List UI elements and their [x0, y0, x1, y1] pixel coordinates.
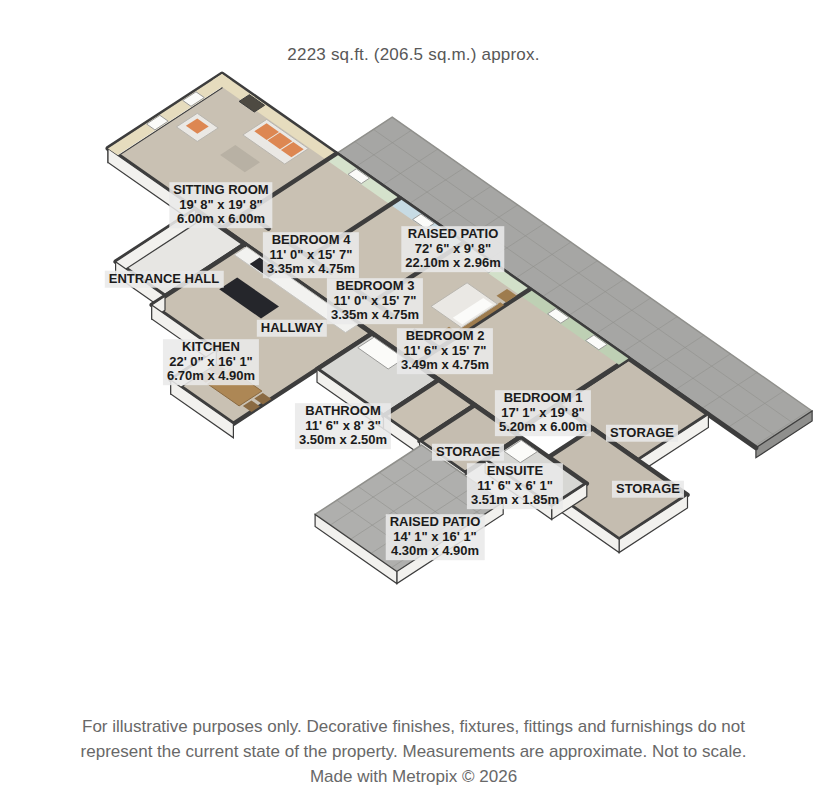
room-name: ENTRANCE HALL	[109, 272, 220, 287]
room-label-ensuite: ENSUITE11' 6" x 6' 1"3.51m x 1.85m	[467, 463, 563, 509]
room-label-bedroom-4: BEDROOM 411' 0" x 15' 7"3.35m x 4.75m	[263, 232, 359, 278]
floorplan-rendering	[0, 0, 827, 800]
room-label-bedroom-1: BEDROOM 117' 1" x 19' 8"5.20m x 6.00m	[495, 390, 591, 436]
room-label-raised-patio-top: RAISED PATIO72' 6" x 9' 8"22.10m x 2.96m	[401, 226, 504, 272]
room-dims-ft: 14' 1" x 16' 1"	[390, 530, 481, 545]
room-name: BEDROOM 2	[401, 329, 489, 344]
room-label-bedroom-2: BEDROOM 211' 6" x 15' 7"3.49m x 4.75m	[397, 328, 493, 374]
room-dims-ft: 11' 6" x 8' 3"	[299, 419, 387, 434]
room-name: HALLWAY	[261, 321, 323, 336]
disclaimer-line-2: represent the current state of the prope…	[0, 739, 827, 764]
floor-area-text: 2223 sq.ft. (206.5 sq.m.) approx.	[0, 45, 827, 65]
room-label-hallway: HALLWAY	[257, 320, 327, 337]
room-label-bedroom-3: BEDROOM 311' 0" x 15' 7"3.35m x 4.75m	[327, 278, 423, 324]
room-name: ENSUITE	[471, 464, 559, 479]
room-dims-ft: 72' 6" x 9' 8"	[405, 242, 500, 257]
room-dims-ft: 19' 8" x 19' 8"	[173, 198, 268, 213]
room-label-bathroom: BATHROOM11' 6" x 8' 3"3.50m x 2.50m	[295, 403, 391, 449]
room-dims-ft: 17' 1" x 19' 8"	[499, 406, 587, 421]
room-dims-m: 3.51m x 1.85m	[471, 493, 559, 508]
room-name: SITTING ROOM	[173, 183, 268, 198]
room-dims-m: 3.35m x 4.75m	[267, 262, 355, 277]
room-name: STORAGE	[436, 445, 500, 460]
room-label-kitchen: KITCHEN22' 0" x 16' 1"6.70m x 4.90m	[163, 339, 259, 385]
room-name: BATHROOM	[299, 404, 387, 419]
room-dims-m: 22.10m x 2.96m	[405, 256, 500, 271]
room-dims-ft: 11' 0" x 15' 7"	[267, 248, 355, 263]
room-label-storage-mid: STORAGE	[432, 444, 504, 461]
room-dims-m: 6.70m x 4.90m	[167, 369, 255, 384]
disclaimer-text: For illustrative purposes only. Decorati…	[0, 714, 827, 789]
room-name: KITCHEN	[167, 340, 255, 355]
room-dims-ft: 11' 6" x 6' 1"	[471, 479, 559, 494]
room-name: RAISED PATIO	[390, 515, 481, 530]
room-dims-m: 3.35m x 4.75m	[331, 308, 419, 323]
room-label-storage-se: STORAGE	[612, 481, 684, 498]
room-name: BEDROOM 4	[267, 233, 355, 248]
room-label-sitting-room: SITTING ROOM19' 8" x 19' 8"6.00m x 6.00m	[169, 182, 272, 228]
room-dims-ft: 22' 0" x 16' 1"	[167, 355, 255, 370]
room-label-raised-patio-bottom: RAISED PATIO14' 1" x 16' 1"4.30m x 4.90m	[386, 514, 485, 560]
room-label-entrance-hall: ENTRANCE HALL	[105, 271, 224, 288]
disclaimer-line-1: For illustrative purposes only. Decorati…	[0, 714, 827, 739]
room-name: BEDROOM 1	[499, 391, 587, 406]
room-name: STORAGE	[610, 426, 674, 441]
room-dims-ft: 11' 0" x 15' 7"	[331, 294, 419, 309]
room-dims-m: 6.00m x 6.00m	[173, 212, 268, 227]
room-dims-m: 3.50m x 2.50m	[299, 433, 387, 448]
room-dims-m: 5.20m x 6.00m	[499, 420, 587, 435]
disclaimer-line-3: Made with Metropix © 2026	[0, 764, 827, 789]
room-name: STORAGE	[616, 482, 680, 497]
room-dims-m: 3.49m x 4.75m	[401, 358, 489, 373]
room-name: RAISED PATIO	[405, 227, 500, 242]
room-dims-ft: 11' 6" x 15' 7"	[401, 344, 489, 359]
floorplan-page: 2223 sq.ft. (206.5 sq.m.) approx. SITTIN…	[0, 0, 827, 800]
room-dims-m: 4.30m x 4.90m	[390, 544, 481, 559]
room-label-storage-ne: STORAGE	[606, 425, 678, 442]
room-name: BEDROOM 3	[331, 279, 419, 294]
